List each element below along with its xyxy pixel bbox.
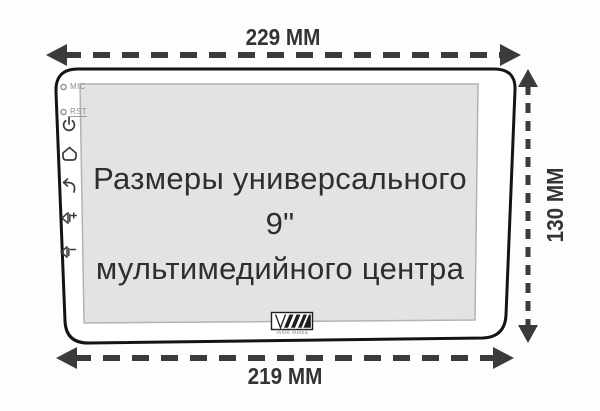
arrowhead-right-icon bbox=[500, 44, 521, 66]
side-height-label: 130 MM bbox=[542, 142, 566, 268]
arrowhead-left-icon bbox=[56, 347, 77, 369]
brand-logo-icon bbox=[272, 313, 313, 330]
device-dimensions-diagram: 229 MM 219 MM 130 MM Размеры универсальн… bbox=[0, 0, 600, 411]
brand-logo-caption: Wide Media bbox=[264, 330, 320, 337]
top-width-label: 229 MM bbox=[220, 24, 346, 51]
rst-label: RST bbox=[70, 108, 87, 116]
mic-label: MIC bbox=[70, 83, 86, 91]
screen-title-line2: мультимедийного центра bbox=[82, 246, 478, 291]
arrowhead-down-icon bbox=[518, 325, 538, 343]
arrowhead-up-icon bbox=[518, 69, 538, 87]
arrowhead-left-icon bbox=[46, 44, 67, 66]
arrowhead-right-icon bbox=[493, 347, 514, 369]
screen-title-line1: Размеры универсального 9" bbox=[82, 156, 478, 246]
screen-title: Размеры универсального 9" мультимедийног… bbox=[82, 156, 478, 291]
dimension-line-right bbox=[518, 69, 538, 343]
bottom-width-label: 219 MM bbox=[222, 363, 348, 390]
